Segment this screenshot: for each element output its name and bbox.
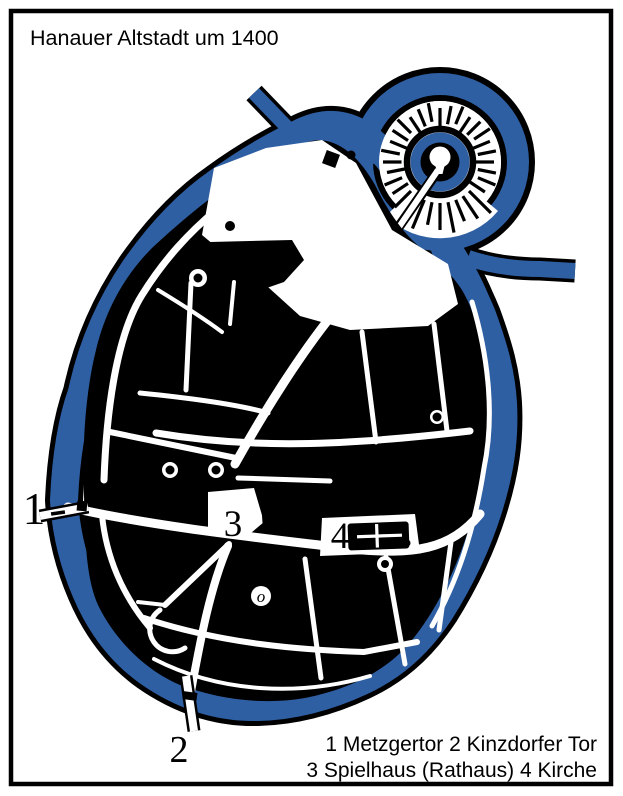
map-legend: 1 Metzgertor 2 Kinzdorfer Tor 3 Spielhau… [306, 733, 597, 782]
street [238, 478, 330, 481]
marker-3-spielhaus: 3 [224, 504, 243, 545]
spielhaus-building [261, 501, 291, 529]
well-dot [194, 274, 203, 283]
church-cross-icon [357, 535, 402, 537]
historical-map-canvas: Hanauer Altstadt um 1400 [0, 0, 623, 796]
well-dot [433, 413, 442, 422]
map-page: Hanauer Altstadt um 1400 [0, 0, 623, 796]
well-dot [212, 466, 221, 475]
church-cross-icon [377, 524, 378, 547]
map-title: Hanauer Altstadt um 1400 [30, 26, 279, 50]
marker-2-kinzdorfer-tor: 2 [170, 729, 189, 771]
castle [379, 101, 501, 238]
well-dot [166, 466, 175, 475]
spielhaus-building-shape [261, 501, 291, 529]
legend-line-2: 3 Spielhaus (Rathaus) 4 Kirche [306, 759, 597, 782]
well-dot [381, 560, 389, 568]
well-dot [225, 221, 235, 231]
marker-4-kirche: 4 [331, 516, 350, 557]
gate1-tower [77, 501, 88, 512]
moat-dot [347, 151, 356, 160]
legend-line-1: 1 Metzgertor 2 Kinzdorfer Tor [325, 733, 597, 756]
marker-1-metzgertor: 1 [23, 484, 46, 534]
map-letter-o: o [257, 587, 266, 606]
church-building [348, 521, 410, 550]
